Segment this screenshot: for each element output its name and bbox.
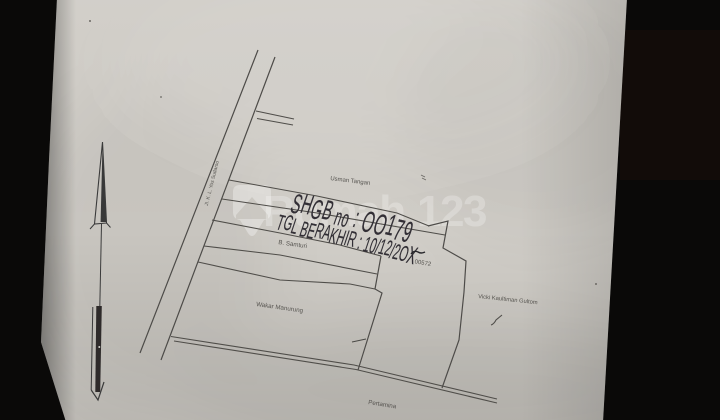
svg-text:123: 123 <box>417 187 486 236</box>
